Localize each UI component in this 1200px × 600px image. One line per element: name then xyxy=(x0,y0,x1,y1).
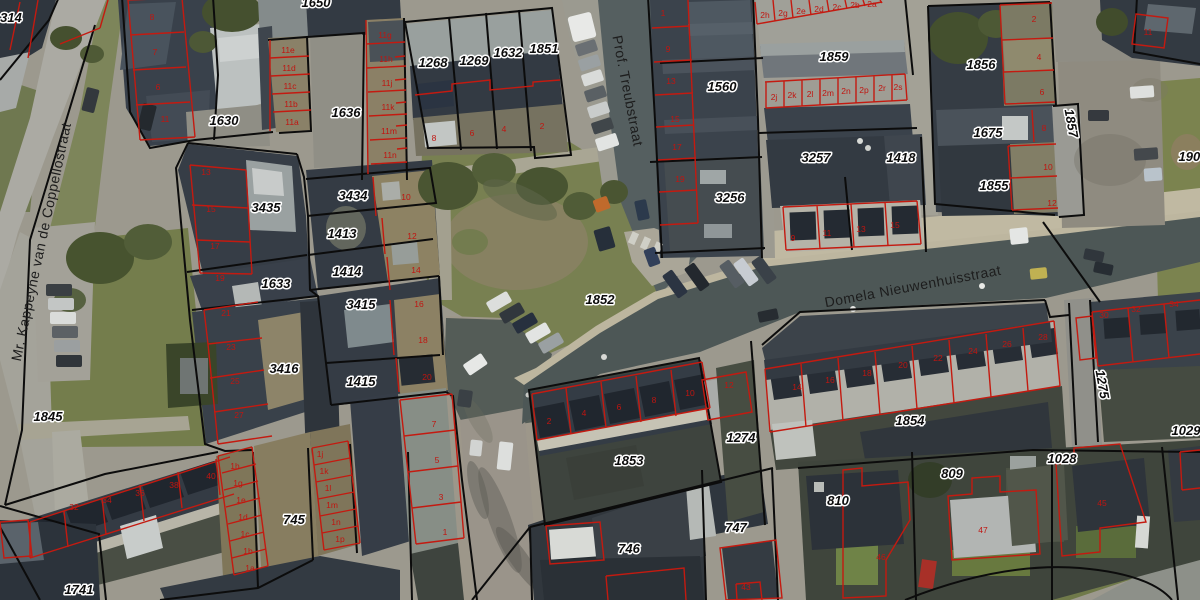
svg-text:10: 10 xyxy=(685,388,695,398)
svg-text:1414: 1414 xyxy=(333,264,363,279)
svg-text:1636: 1636 xyxy=(332,105,362,120)
svg-text:2c: 2c xyxy=(833,2,843,12)
svg-text:1e: 1e xyxy=(236,495,246,505)
svg-text:23: 23 xyxy=(226,342,236,352)
svg-text:1741: 1741 xyxy=(65,582,94,597)
svg-text:2s: 2s xyxy=(894,82,903,92)
svg-text:8: 8 xyxy=(150,12,155,22)
svg-text:8: 8 xyxy=(432,133,437,143)
svg-text:1845: 1845 xyxy=(34,409,64,424)
svg-text:11d: 11d xyxy=(282,63,296,73)
svg-text:1029: 1029 xyxy=(1172,423,1200,438)
svg-text:1a: 1a xyxy=(245,563,255,573)
svg-text:2: 2 xyxy=(540,121,545,131)
svg-text:11h: 11h xyxy=(379,54,393,64)
svg-text:12: 12 xyxy=(724,380,734,390)
svg-text:16: 16 xyxy=(825,375,835,385)
svg-text:1853: 1853 xyxy=(615,453,645,468)
svg-text:1630: 1630 xyxy=(210,113,240,128)
svg-text:45: 45 xyxy=(1097,498,1107,508)
svg-text:1d: 1d xyxy=(238,512,248,522)
svg-text:1633: 1633 xyxy=(262,276,292,291)
svg-text:2h: 2h xyxy=(760,10,770,20)
svg-text:2n: 2n xyxy=(841,86,851,96)
svg-text:47: 47 xyxy=(978,525,988,535)
svg-text:27: 27 xyxy=(234,410,244,420)
svg-text:11k: 11k xyxy=(381,102,395,112)
svg-text:3415: 3415 xyxy=(347,297,377,312)
svg-text:15: 15 xyxy=(670,114,680,124)
svg-text:1675: 1675 xyxy=(974,125,1004,140)
svg-text:2d: 2d xyxy=(814,4,824,14)
svg-text:4: 4 xyxy=(1037,52,1042,62)
svg-text:40: 40 xyxy=(206,471,216,481)
svg-text:11m: 11m xyxy=(381,126,397,136)
svg-text:36: 36 xyxy=(135,488,145,498)
svg-text:14: 14 xyxy=(792,382,802,392)
svg-text:17: 17 xyxy=(672,142,682,152)
svg-text:20: 20 xyxy=(422,372,432,382)
svg-text:1b: 1b xyxy=(243,546,253,556)
svg-text:1413: 1413 xyxy=(328,226,358,241)
svg-text:3434: 3434 xyxy=(339,188,369,203)
svg-text:1p: 1p xyxy=(335,534,345,544)
svg-text:11n: 11n xyxy=(383,150,397,160)
svg-text:19: 19 xyxy=(215,273,225,283)
svg-text:1: 1 xyxy=(443,527,448,537)
svg-text:16: 16 xyxy=(414,299,424,309)
svg-text:25: 25 xyxy=(230,376,240,386)
svg-text:3257: 3257 xyxy=(802,150,832,165)
svg-text:1l: 1l xyxy=(325,483,332,493)
svg-text:30: 30 xyxy=(1099,310,1109,320)
svg-text:32: 32 xyxy=(1131,304,1141,314)
svg-text:2a: 2a xyxy=(867,0,877,9)
svg-text:4: 4 xyxy=(582,408,587,418)
svg-text:1c: 1c xyxy=(241,529,251,539)
svg-text:11b: 11b xyxy=(284,99,298,109)
svg-text:21: 21 xyxy=(221,308,231,318)
svg-text:11j: 11j xyxy=(382,78,393,88)
svg-text:46: 46 xyxy=(876,552,886,562)
svg-text:32: 32 xyxy=(69,502,79,512)
svg-text:1g: 1g xyxy=(233,478,243,488)
svg-text:1856: 1856 xyxy=(967,57,997,72)
svg-text:38: 38 xyxy=(169,480,179,490)
svg-text:34: 34 xyxy=(1169,299,1179,309)
svg-text:8: 8 xyxy=(1042,123,1047,133)
svg-text:10: 10 xyxy=(401,192,411,202)
svg-text:11: 11 xyxy=(1144,27,1153,37)
svg-text:22: 22 xyxy=(933,353,943,363)
svg-text:314: 314 xyxy=(0,10,22,25)
svg-text:2m: 2m xyxy=(822,88,834,98)
svg-text:9: 9 xyxy=(666,44,671,54)
svg-text:7: 7 xyxy=(432,419,437,429)
svg-text:6: 6 xyxy=(156,82,161,92)
svg-text:14: 14 xyxy=(411,265,421,275)
svg-text:13: 13 xyxy=(666,76,676,86)
svg-text:1274: 1274 xyxy=(727,430,757,445)
svg-text:12: 12 xyxy=(1047,198,1057,208)
svg-text:2: 2 xyxy=(1032,14,1037,24)
svg-text:1269: 1269 xyxy=(460,53,490,68)
svg-text:809: 809 xyxy=(941,466,963,481)
svg-text:1j: 1j xyxy=(317,449,324,459)
svg-text:11: 11 xyxy=(823,228,832,238)
svg-text:1650: 1650 xyxy=(302,0,332,10)
svg-text:1m: 1m xyxy=(326,500,338,510)
svg-text:1k: 1k xyxy=(320,466,330,476)
svg-text:2l: 2l xyxy=(807,89,814,99)
svg-text:1560: 1560 xyxy=(708,79,738,94)
svg-text:24: 24 xyxy=(968,346,978,356)
svg-text:17: 17 xyxy=(210,241,220,251)
svg-text:3435: 3435 xyxy=(252,200,282,215)
svg-text:11e: 11e xyxy=(281,45,295,55)
svg-text:5: 5 xyxy=(435,455,440,465)
svg-text:15: 15 xyxy=(206,204,216,214)
svg-text:6: 6 xyxy=(617,402,622,412)
svg-text:18: 18 xyxy=(862,368,872,378)
svg-text:1852: 1852 xyxy=(586,292,616,307)
svg-text:1855: 1855 xyxy=(980,178,1010,193)
svg-text:1n: 1n xyxy=(331,517,341,527)
svg-text:1418: 1418 xyxy=(887,150,917,165)
svg-text:1028: 1028 xyxy=(1048,451,1078,466)
svg-text:15: 15 xyxy=(890,220,900,230)
svg-text:3256: 3256 xyxy=(716,190,746,205)
svg-text:746: 746 xyxy=(618,541,640,556)
svg-text:26: 26 xyxy=(1002,339,1012,349)
svg-text:12: 12 xyxy=(407,231,417,241)
svg-text:2e: 2e xyxy=(796,6,806,16)
svg-text:810: 810 xyxy=(827,493,849,508)
svg-text:2r: 2r xyxy=(878,83,886,93)
svg-text:1632: 1632 xyxy=(494,45,524,60)
svg-text:747: 747 xyxy=(725,520,747,535)
svg-text:2: 2 xyxy=(547,416,552,426)
svg-text:6: 6 xyxy=(1040,87,1045,97)
svg-text:34: 34 xyxy=(102,495,112,505)
svg-text:11c: 11c xyxy=(283,81,297,91)
svg-text:2j: 2j xyxy=(771,92,778,102)
svg-text:9: 9 xyxy=(791,233,796,243)
svg-text:28: 28 xyxy=(1038,332,1048,342)
svg-text:11: 11 xyxy=(161,114,170,124)
svg-text:2b: 2b xyxy=(850,0,860,10)
svg-text:7: 7 xyxy=(153,47,158,57)
svg-text:1851: 1851 xyxy=(530,41,559,56)
svg-text:1: 1 xyxy=(661,8,666,18)
svg-text:43: 43 xyxy=(741,582,751,592)
svg-text:3: 3 xyxy=(439,492,444,502)
svg-text:13: 13 xyxy=(201,167,211,177)
svg-text:1268: 1268 xyxy=(419,55,449,70)
svg-text:1900: 1900 xyxy=(1179,149,1200,164)
svg-text:13: 13 xyxy=(856,224,866,234)
svg-text:2p: 2p xyxy=(859,85,869,95)
svg-text:1h: 1h xyxy=(230,461,240,471)
svg-text:11g: 11g xyxy=(378,30,392,40)
svg-text:1415: 1415 xyxy=(347,374,377,389)
svg-text:8: 8 xyxy=(652,395,657,405)
svg-text:19: 19 xyxy=(675,174,685,184)
svg-text:2g: 2g xyxy=(778,8,788,18)
svg-text:10: 10 xyxy=(1043,162,1053,172)
svg-text:4: 4 xyxy=(502,124,507,134)
svg-text:11a: 11a xyxy=(285,117,299,127)
svg-text:745: 745 xyxy=(283,512,305,527)
svg-text:1859: 1859 xyxy=(820,49,850,64)
svg-text:18: 18 xyxy=(418,335,428,345)
svg-text:2k: 2k xyxy=(788,90,798,100)
svg-text:20: 20 xyxy=(898,360,908,370)
svg-text:6: 6 xyxy=(470,128,475,138)
svg-text:3416: 3416 xyxy=(270,361,300,376)
svg-text:1854: 1854 xyxy=(896,413,926,428)
